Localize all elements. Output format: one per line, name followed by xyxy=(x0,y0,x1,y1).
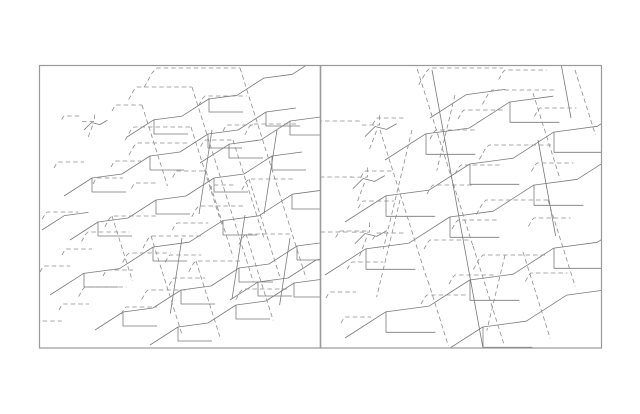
figure-page xyxy=(0,0,640,414)
two-panel-line-figure xyxy=(0,0,640,414)
